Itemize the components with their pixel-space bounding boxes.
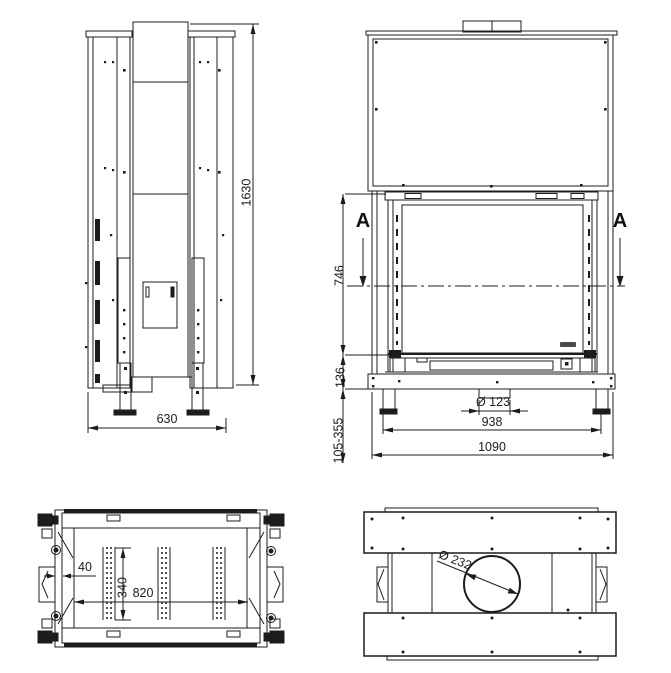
side-latch-left-section [377,567,388,602]
lower-shell [364,613,616,656]
dim-label-inner-width: 820 [122,587,164,600]
dim-label-side-depth: 630 [143,413,191,426]
mounting-rails [118,258,204,363]
access-door [143,282,177,328]
section-screw-dots [371,517,610,654]
side-panel-left [88,37,130,388]
section-marker-a-right: A [610,209,630,233]
section-marker-a-left: A [353,209,373,233]
side-latch-right [267,567,283,602]
drawing-linework [0,0,671,673]
side-view [85,22,259,433]
screw-dots [85,61,224,394]
side-walls [372,191,613,374]
dim-820 [74,600,248,605]
side-panel-right [190,37,233,388]
dim-label-air-inlet: Ø 123 [469,396,517,409]
dim-label-base-height: 136 [334,354,347,402]
dim-label-opening-height: 746 [333,252,346,300]
dim-label-side-height: 1630 [240,169,253,217]
section-arrow-right [617,238,624,287]
corner-miters [58,532,264,624]
side-latch-right-section [596,567,607,602]
dim-label-feet-span: 938 [468,416,516,429]
dim-label-leg-range: 105-355 [332,417,345,465]
vent-slots [95,219,100,383]
side-panel-caps [86,31,235,37]
firebox-top-band [385,192,598,200]
technical-drawing-canvas: 1630 630 A A 746 136 105-355 Ø 123 938 1… [0,0,671,673]
side-legs [103,363,209,415]
brand-logo [560,342,576,347]
base-plate [368,374,615,389]
chimney-column [133,22,188,377]
section-arrow-left [360,238,367,287]
side-latch-left [39,567,55,602]
chimney-stub [463,21,521,32]
hood [368,35,613,191]
dim-label-frame-thickness: 40 [72,561,98,574]
dim-40 [44,574,96,579]
dim-label-total-width: 1090 [468,441,516,454]
top-view [38,509,284,647]
section-view [364,508,616,660]
under-glass-tray [385,358,598,372]
